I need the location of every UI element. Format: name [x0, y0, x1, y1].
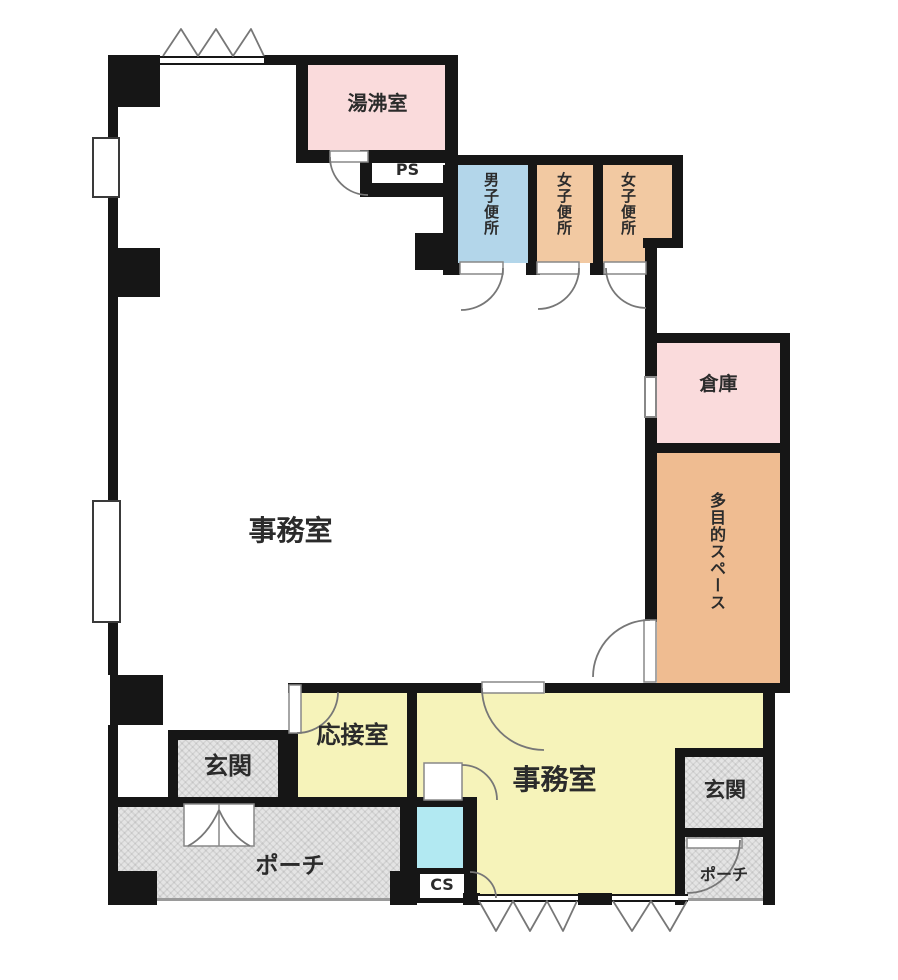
- wall: [780, 333, 790, 693]
- room-label-yuwakashi: 湯沸室: [330, 92, 425, 115]
- wall: [110, 675, 163, 725]
- wall: [645, 453, 657, 622]
- wall: [463, 797, 477, 873]
- wall: [645, 333, 790, 343]
- wall: [443, 263, 460, 275]
- room-label-office-main: 事務室: [228, 515, 353, 547]
- wall: [645, 418, 657, 443]
- window-zigzag-icon: [479, 901, 577, 931]
- wall: [108, 623, 118, 675]
- door-leaf: [460, 262, 503, 274]
- room-label-reception: 応接室: [300, 722, 405, 750]
- wall: [645, 248, 657, 343]
- floor-plan: 湯沸室 PS 男子便所 女子便所 女子便所 倉庫 多目的スペース 事務室 応接室…: [0, 0, 898, 980]
- wall: [108, 197, 118, 248]
- door-leaf: [644, 620, 656, 682]
- window-zigzag-icon: [613, 901, 687, 931]
- window-south-2: [612, 894, 688, 902]
- wall: [445, 155, 683, 165]
- room-label-porch-west: ポーチ: [230, 853, 350, 879]
- door-leaf: [604, 262, 646, 274]
- wall: [296, 150, 330, 163]
- room-label-multipurpose: 多目的スペース: [708, 492, 724, 611]
- wall: [672, 155, 683, 248]
- wall: [645, 683, 790, 693]
- wall: [528, 165, 537, 272]
- room-cs-closet: [417, 805, 463, 871]
- wall: [645, 443, 790, 453]
- door-leaf: [482, 682, 544, 693]
- window: [644, 376, 657, 418]
- door-arc: [593, 620, 650, 677]
- room-label-office-south: 事務室: [492, 764, 617, 796]
- room-label-cs: CS: [420, 876, 464, 894]
- window: [92, 500, 121, 623]
- room-label-entrance-east: 玄関: [685, 778, 765, 802]
- room-label-womens-wc-2: 女子便所: [620, 172, 635, 236]
- window: [92, 137, 120, 198]
- wall: [590, 263, 607, 275]
- wall: [288, 683, 482, 693]
- window-top: [160, 56, 264, 65]
- door-arc: [538, 268, 579, 309]
- room-label-storage: 倉庫: [657, 374, 780, 396]
- wall: [545, 683, 657, 693]
- wall: [108, 248, 160, 297]
- room-label-womens-wc-1: 女子便所: [556, 172, 571, 236]
- room-womens-wc-2: [603, 165, 672, 238]
- wall: [645, 343, 657, 376]
- room-label-ps: PS: [372, 161, 443, 179]
- room-label-entrance-west: 玄関: [178, 753, 278, 781]
- room-label-mens-wc: 男子便所: [483, 172, 498, 236]
- window-zigzag-icon: [163, 29, 264, 56]
- room-womens-wc-2-lower: [603, 238, 645, 263]
- wall: [296, 60, 308, 160]
- wall: [675, 748, 685, 905]
- wall: [108, 297, 118, 500]
- wall: [390, 871, 417, 905]
- window-south-1: [478, 894, 578, 902]
- wall: [108, 797, 477, 807]
- wall: [288, 732, 298, 797]
- room-label-porch-east: ポーチ: [687, 866, 761, 884]
- wall: [578, 893, 612, 905]
- door-leaf: [537, 262, 579, 274]
- wall: [108, 107, 118, 137]
- wall: [526, 263, 540, 275]
- wall: [407, 683, 417, 807]
- wall: [108, 55, 160, 107]
- wall: [643, 238, 683, 248]
- wall: [263, 55, 458, 65]
- wall: [108, 871, 157, 905]
- door-arc: [461, 268, 503, 310]
- wall: [445, 55, 458, 165]
- wall: [593, 165, 603, 272]
- door-arc: [606, 268, 646, 308]
